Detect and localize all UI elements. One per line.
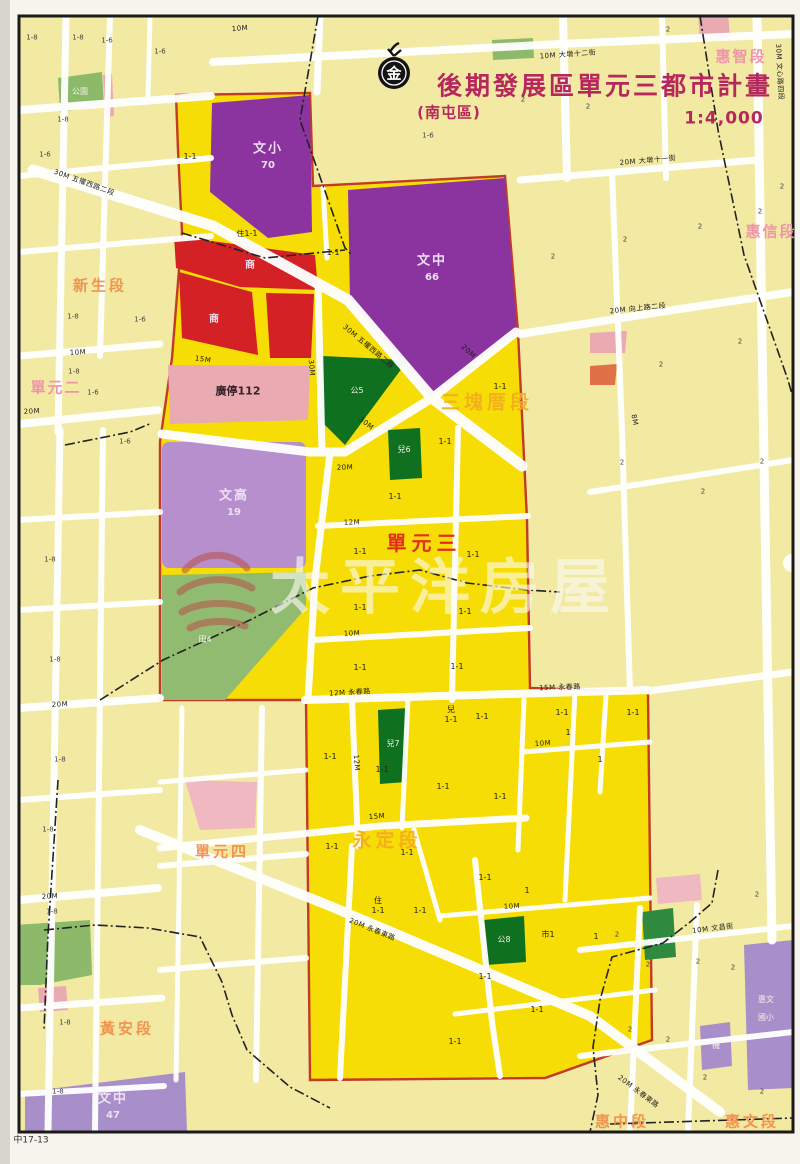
zone-orange-right — [590, 364, 617, 385]
zone-green-bottomright — [642, 908, 676, 960]
zone-institution — [700, 1022, 732, 1070]
zone-school-huiwen — [744, 940, 793, 1090]
zone-plaza-parking-112 — [168, 365, 310, 424]
map-content — [15, 10, 800, 1132]
zone-playground-6 — [388, 428, 422, 480]
zone-school-senior-19 — [162, 442, 306, 568]
zone-park-8 — [484, 916, 526, 965]
zone-commercial-c — [266, 293, 314, 358]
planning-map — [0, 0, 800, 1164]
zone-pink-bottomright — [656, 874, 702, 904]
map-screenshot: 後期發展區單元三都市計畫(南屯區)1:4,000金太平洋房屋中17-13新生段單… — [0, 0, 800, 1164]
